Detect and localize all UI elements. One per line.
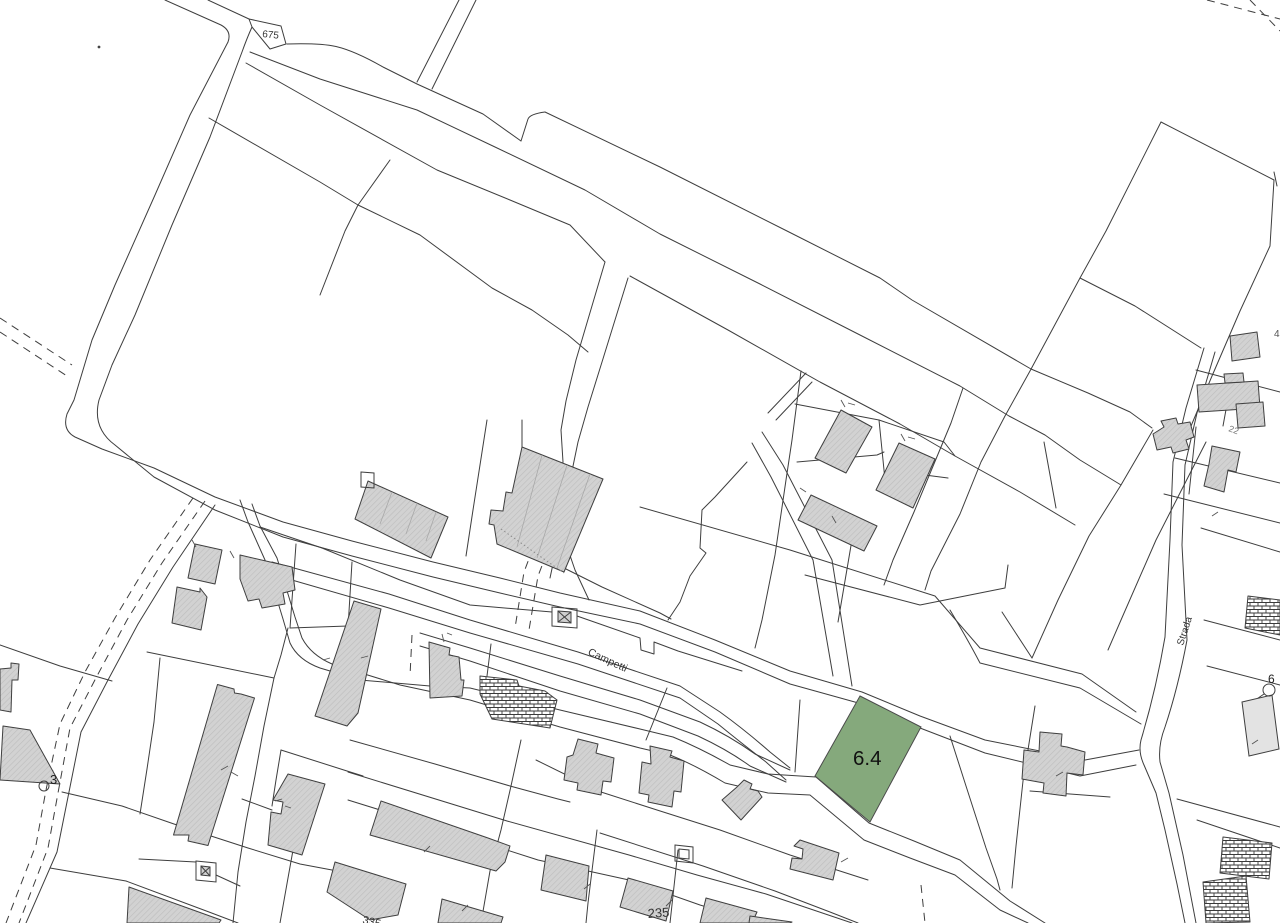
svg-text:6.4: 6.4 [853,747,882,770]
svg-text:675: 675 [262,29,280,42]
svg-text:3: 3 [50,772,57,787]
svg-text:4: 4 [1274,329,1280,340]
svg-text:235: 235 [647,905,670,921]
svg-text:6: 6 [1268,672,1275,686]
